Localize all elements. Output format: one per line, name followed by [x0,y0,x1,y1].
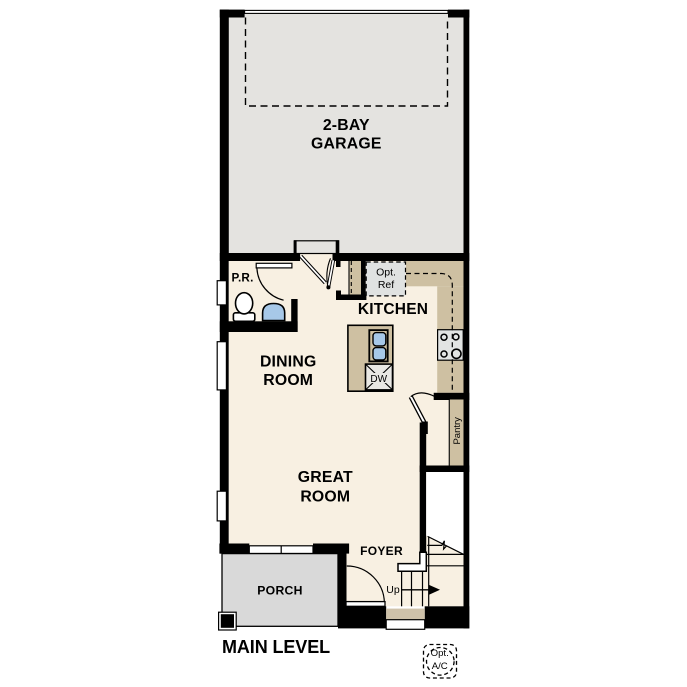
svg-text:MAIN LEVEL: MAIN LEVEL [222,637,330,657]
svg-text:Opt.: Opt. [431,648,449,659]
svg-text:DW: DW [370,374,387,385]
svg-text:Ref: Ref [378,279,394,291]
svg-text:A/C: A/C [432,661,448,672]
svg-text:ROOM: ROOM [300,488,350,505]
svg-text:Pantry: Pantry [452,417,463,445]
svg-text:Opt.: Opt. [376,267,396,279]
svg-text:P.R.: P.R. [232,271,254,284]
svg-text:GARAGE: GARAGE [311,136,382,153]
svg-text:FOYER: FOYER [360,544,403,558]
svg-text:2-BAY: 2-BAY [323,117,370,134]
svg-text:GREAT: GREAT [298,469,353,486]
svg-text:PORCH: PORCH [257,583,303,597]
svg-text:KITCHEN: KITCHEN [358,301,428,318]
svg-text:DINING: DINING [260,354,317,371]
svg-text:Up: Up [386,584,400,596]
svg-text:ROOM: ROOM [263,372,313,389]
